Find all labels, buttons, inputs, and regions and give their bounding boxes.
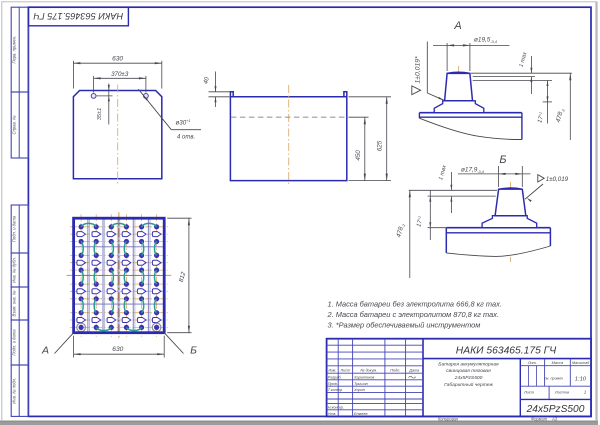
svg-text:Хорин: Хорин [353, 388, 366, 392]
svg-text:Габаритный чертеж: Габаритный чертеж [444, 381, 493, 388]
svg-text:1±0,019: 1±0,019 [546, 176, 569, 183]
svg-text:Копировал: Копировал [438, 416, 459, 421]
svg-text:НАКИ 563465.175 ГЧ: НАКИ 563465.175 ГЧ [33, 11, 123, 21]
svg-text:Подп.: Подп. [390, 369, 400, 373]
svg-text:Масштаб: Масштаб [572, 361, 590, 365]
svg-text:Енжеев: Енжеев [354, 412, 367, 416]
svg-text:Взам. инв. №: Взам. инв. № [12, 290, 17, 316]
svg-text:1±0,019*: 1±0,019* [415, 56, 422, 84]
svg-text:свинцовая тяговая: свинцовая тяговая [446, 369, 491, 374]
svg-text:630: 630 [112, 346, 123, 353]
svg-text:А: А [41, 345, 49, 357]
svg-text:Инв. № дубл.: Инв. № дубл. [12, 257, 17, 283]
svg-text:625: 625 [377, 140, 384, 151]
svg-text:Справ. №: Справ. № [12, 115, 17, 134]
svg-text:Б: Б [190, 345, 197, 357]
svg-text:А: А [453, 20, 461, 32]
svg-text:Лит.: Лит. [527, 360, 537, 365]
svg-text:370±3: 370±3 [111, 71, 129, 78]
svg-text:Утв.: Утв. [328, 412, 337, 416]
svg-text:Тришин: Тришин [354, 382, 369, 386]
svg-text:Лист: Лист [523, 390, 535, 395]
svg-text:Масса: Масса [552, 360, 564, 365]
svg-text:Пров.: Пров. [328, 382, 338, 386]
svg-text:Формат: Формат [531, 416, 548, 421]
svg-text:24х5PzS500: 24х5PzS500 [526, 404, 585, 415]
svg-text:Лист: Лист [340, 369, 351, 373]
svg-text:Б: Б [499, 154, 506, 166]
svg-text:Инв. № подл.: Инв. № подл. [12, 378, 17, 404]
svg-text:Разраб.: Разраб. [328, 375, 342, 379]
svg-text:3. *Размер обеспечиваемый инст: 3. *Размер обеспечиваемый инструментом [328, 321, 481, 330]
svg-text:1:10: 1:10 [575, 377, 587, 383]
svg-text:1: 1 [584, 390, 586, 395]
svg-text:Листов: Листов [554, 390, 569, 395]
svg-text:Т.контр.: Т.контр. [328, 388, 343, 392]
svg-text:2. Масса батареи с электролито: 2. Масса батареи с электролитом 870,8 кг… [327, 310, 500, 319]
svg-text:Перв. примен.: Перв. примен. [12, 36, 17, 64]
svg-text:Батарея аккумуляторная: Батарея аккумуляторная [438, 361, 499, 367]
svg-text:Харитонов: Харитонов [353, 375, 374, 379]
svg-text:Изм.: Изм. [328, 369, 336, 373]
svg-text:А3: А3 [551, 416, 558, 421]
svg-text:630: 630 [112, 56, 123, 63]
svg-text:Дата: Дата [408, 369, 419, 373]
svg-text:4 отв.: 4 отв. [177, 134, 195, 140]
svg-text:Н.контр.: Н.контр. [328, 405, 344, 409]
svg-text:Подп. и дата: Подп. и дата [12, 215, 17, 242]
svg-text:№ докум.: № докум. [360, 369, 377, 373]
svg-text:см. примеч: см. примеч [544, 377, 563, 381]
svg-text:1. Масса батареи без электроли: 1. Масса батареи без электролита 666,8 к… [328, 300, 502, 309]
svg-text:450: 450 [355, 150, 362, 161]
svg-text:НАКИ 563465.175 ГЧ: НАКИ 563465.175 ГЧ [456, 345, 556, 356]
svg-text:35±1: 35±1 [97, 108, 103, 120]
svg-text:Подп. и дата: Подп. и дата [12, 329, 17, 356]
svg-text:24х5PzS500: 24х5PzS500 [454, 375, 483, 381]
